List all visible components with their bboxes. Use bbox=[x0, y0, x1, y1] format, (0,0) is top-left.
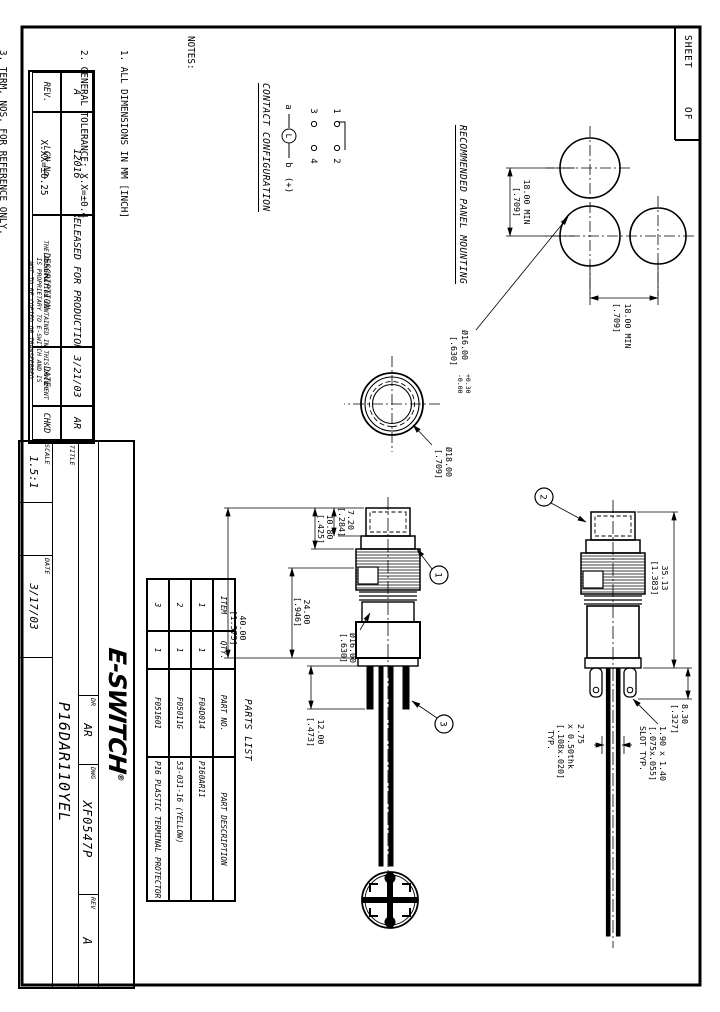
panel-mounting-view bbox=[476, 126, 694, 330]
slot-note-2: [.075x.055] bbox=[648, 726, 658, 781]
chkd-value: AR bbox=[61, 406, 93, 440]
pin-note-3: [.108x.020] bbox=[556, 724, 566, 779]
dr-value: AR bbox=[81, 696, 94, 764]
dim-term: 12.00 bbox=[316, 720, 326, 745]
logo-text: E-SWITCH bbox=[103, 646, 131, 774]
dim-cap: 7.20 bbox=[346, 510, 356, 530]
term-1: 1 bbox=[331, 108, 341, 113]
of-label: OF bbox=[682, 107, 693, 120]
rev-cell: REV A bbox=[78, 894, 98, 987]
sheet-of-labels: SHEET OF bbox=[675, 27, 696, 140]
hole-dia-inch: [.630] bbox=[449, 336, 459, 366]
parts-list-title: PARTS LIST bbox=[242, 660, 253, 800]
dim-bezel: 10.80 bbox=[325, 515, 335, 540]
drawn-by-cell: DR AR bbox=[78, 695, 98, 764]
dim-overall2: 35.13 bbox=[660, 566, 670, 591]
parts-cell: 1 bbox=[191, 631, 213, 669]
dim-term2-inch: [.327] bbox=[670, 704, 680, 734]
dim-term2: 8.30 bbox=[680, 704, 690, 724]
parts-list-table: ITEM QTY. PART NO. PART DESCRIPTION 1 1 … bbox=[146, 578, 236, 902]
hole-tol-plus: +0.30 bbox=[464, 374, 472, 394]
lcn-value: 12016 bbox=[61, 112, 93, 215]
dwg-value: XF0547P bbox=[80, 765, 94, 894]
parts-cell: 53-031-16 (YELLOW) bbox=[169, 757, 191, 901]
rev-value: A bbox=[61, 72, 93, 112]
scale-cell: SCALE 1.5:1 bbox=[19, 442, 52, 502]
registered-mark-icon: ® bbox=[116, 773, 125, 782]
scale-label: SCALE bbox=[43, 444, 51, 465]
title-block-spacer bbox=[19, 657, 52, 987]
parts-header: PART DESCRIPTION bbox=[213, 757, 235, 901]
balloon-3: 3 bbox=[438, 721, 448, 726]
panel-mounting-dim-text: 18.00 MIN [.709] 18.00 MIN [.709] Ø16.00… bbox=[449, 180, 633, 394]
parts-cell: 1 bbox=[191, 579, 213, 631]
dim-18-horiz: 18.00 MIN bbox=[522, 180, 532, 225]
panel-mounting-heading: RECOMMENDED PANEL MOUNTING bbox=[455, 125, 468, 284]
terminal-end-view bbox=[362, 872, 418, 928]
parts-cell: 3 bbox=[147, 579, 169, 631]
balloon-1: 1 bbox=[433, 572, 443, 577]
notes-heading: NOTES: bbox=[184, 36, 197, 330]
part-number-title: P16DAR110YEL bbox=[55, 622, 73, 902]
dim-cap-inch: [.284] bbox=[337, 507, 347, 537]
company-logo: E-SWITCH® bbox=[103, 441, 131, 989]
parts-cell: P160AR11 bbox=[191, 757, 213, 901]
lamp-symbol-label: L bbox=[284, 134, 293, 139]
term-2: 2 bbox=[331, 158, 341, 163]
dim-18-horiz-inch: [.709] bbox=[512, 187, 522, 217]
proprietary-notice: THE INFORMATION CONTAINED IN THIS DOCUME… bbox=[27, 200, 49, 440]
title-block-spacer bbox=[78, 442, 98, 695]
parts-cell: F051601 bbox=[147, 669, 169, 757]
pin-note-1: 2.75 bbox=[576, 724, 586, 744]
contact-configuration-heading: CONTACT CONFIGURATION bbox=[258, 83, 271, 212]
term-a: a bbox=[283, 104, 293, 109]
date-cell: DATE 3/17/03 bbox=[19, 555, 52, 657]
dim-bezel-inch: [.425] bbox=[316, 514, 326, 544]
dim-18-vert: 18.00 MIN bbox=[623, 304, 633, 349]
side-view-2 bbox=[535, 488, 692, 948]
parts-header: PART NO. bbox=[213, 669, 235, 757]
pin-note-4: TYP. bbox=[546, 730, 556, 750]
date-value: 3/21/03 bbox=[61, 347, 93, 406]
term-4: 4 bbox=[308, 158, 318, 163]
front-dia: Ø18.00 bbox=[444, 447, 454, 477]
parts-cell: 1 bbox=[169, 631, 191, 669]
balloon-2: 2 bbox=[538, 494, 548, 499]
sheet-label: SHEET bbox=[682, 35, 693, 69]
scale-value: 1.5:1 bbox=[27, 442, 40, 502]
parts-cell: 2 bbox=[169, 579, 191, 631]
front-dia-inch: [.709] bbox=[434, 449, 444, 479]
dim-bushing-inch: [.630] bbox=[339, 633, 349, 663]
date-value: 3/17/03 bbox=[27, 556, 40, 657]
proprietary-line: NOT TO BE COPIED OR TRANSFERRED bbox=[27, 200, 34, 440]
rev-header: REV. bbox=[32, 72, 61, 112]
parts-cell: P16 PLASTIC TERMINAL PROTECTOR bbox=[147, 757, 169, 901]
dim-overall2-inch: [1.383] bbox=[650, 561, 660, 596]
proprietary-line: THE INFORMATION CONTAINED IN THIS DOCUME… bbox=[42, 200, 49, 440]
dim-overall: 40.00 bbox=[238, 616, 248, 641]
hole-tol-minus: -0.00 bbox=[456, 374, 464, 394]
note-line: 3. TERM. NOS. FOR REFERENCE ONLY. bbox=[0, 50, 10, 330]
parts-header: QTY. bbox=[213, 631, 235, 669]
pin-note-2: x 0.50thk bbox=[566, 724, 576, 769]
title-label: TITLE bbox=[68, 445, 76, 466]
proprietary-line: IS PROPRIETARY TO E-SWITCH AND IS bbox=[34, 200, 41, 440]
slot-note-1: 1.90 x 1.40 bbox=[658, 726, 668, 781]
title-block-row-scale-date: SCALE 1.5:1 DATE 3/17/03 bbox=[19, 442, 53, 987]
parts-header: ITEM bbox=[213, 579, 235, 631]
parts-cell: F04D014 bbox=[191, 669, 213, 757]
dim-term-inch: [.473] bbox=[306, 717, 316, 747]
front-view bbox=[344, 356, 440, 452]
parts-cell: F05011G bbox=[169, 669, 191, 757]
title-block: E-SWITCH® DR AR DWG XF0547P REV A TITLE … bbox=[18, 440, 135, 989]
engineering-drawing-sheet: 18.00 MIN [.709] 18.00 MIN [.709] Ø16.00… bbox=[0, 0, 720, 1012]
dim-18-vert-inch: [.709] bbox=[612, 303, 622, 333]
note-line: 1. ALL DIMENSIONS IN MM [INCH] bbox=[117, 50, 130, 330]
side-view-1 bbox=[224, 497, 453, 872]
hole-dia: Ø16.00 bbox=[460, 330, 470, 360]
title-row: TITLE P16DAR110YEL bbox=[52, 442, 79, 987]
term-b: b bbox=[283, 162, 293, 167]
side-view-2-dims: 35.13 [1.383] 8.30 [.327] 1.90 x 1.40 [.… bbox=[538, 494, 691, 781]
lamp-polarity: (+) bbox=[283, 177, 293, 193]
term-3: 3 bbox=[308, 108, 318, 113]
date-label: DATE bbox=[43, 558, 51, 574]
dim-body-inch: [.946] bbox=[293, 597, 303, 627]
slot-note-3: SLOT TYP. bbox=[638, 726, 648, 771]
description-value: RELEASED FOR PRODUCTION bbox=[61, 215, 93, 347]
dim-bushing: Ø16.00 bbox=[348, 633, 358, 663]
drawing-sheet-viewport: 18.00 MIN [.709] 18.00 MIN [.709] Ø16.00… bbox=[0, 0, 720, 1012]
dim-body: 24.00 bbox=[302, 600, 312, 625]
rev-value: A bbox=[80, 895, 94, 987]
parts-cell: 1 bbox=[147, 631, 169, 669]
dwg-number-cell: DWG XF0547P bbox=[78, 764, 98, 894]
title-block-spacer bbox=[19, 502, 52, 555]
title-block-row-dr-dwg-rev: DR AR DWG XF0547P REV A bbox=[78, 442, 99, 987]
